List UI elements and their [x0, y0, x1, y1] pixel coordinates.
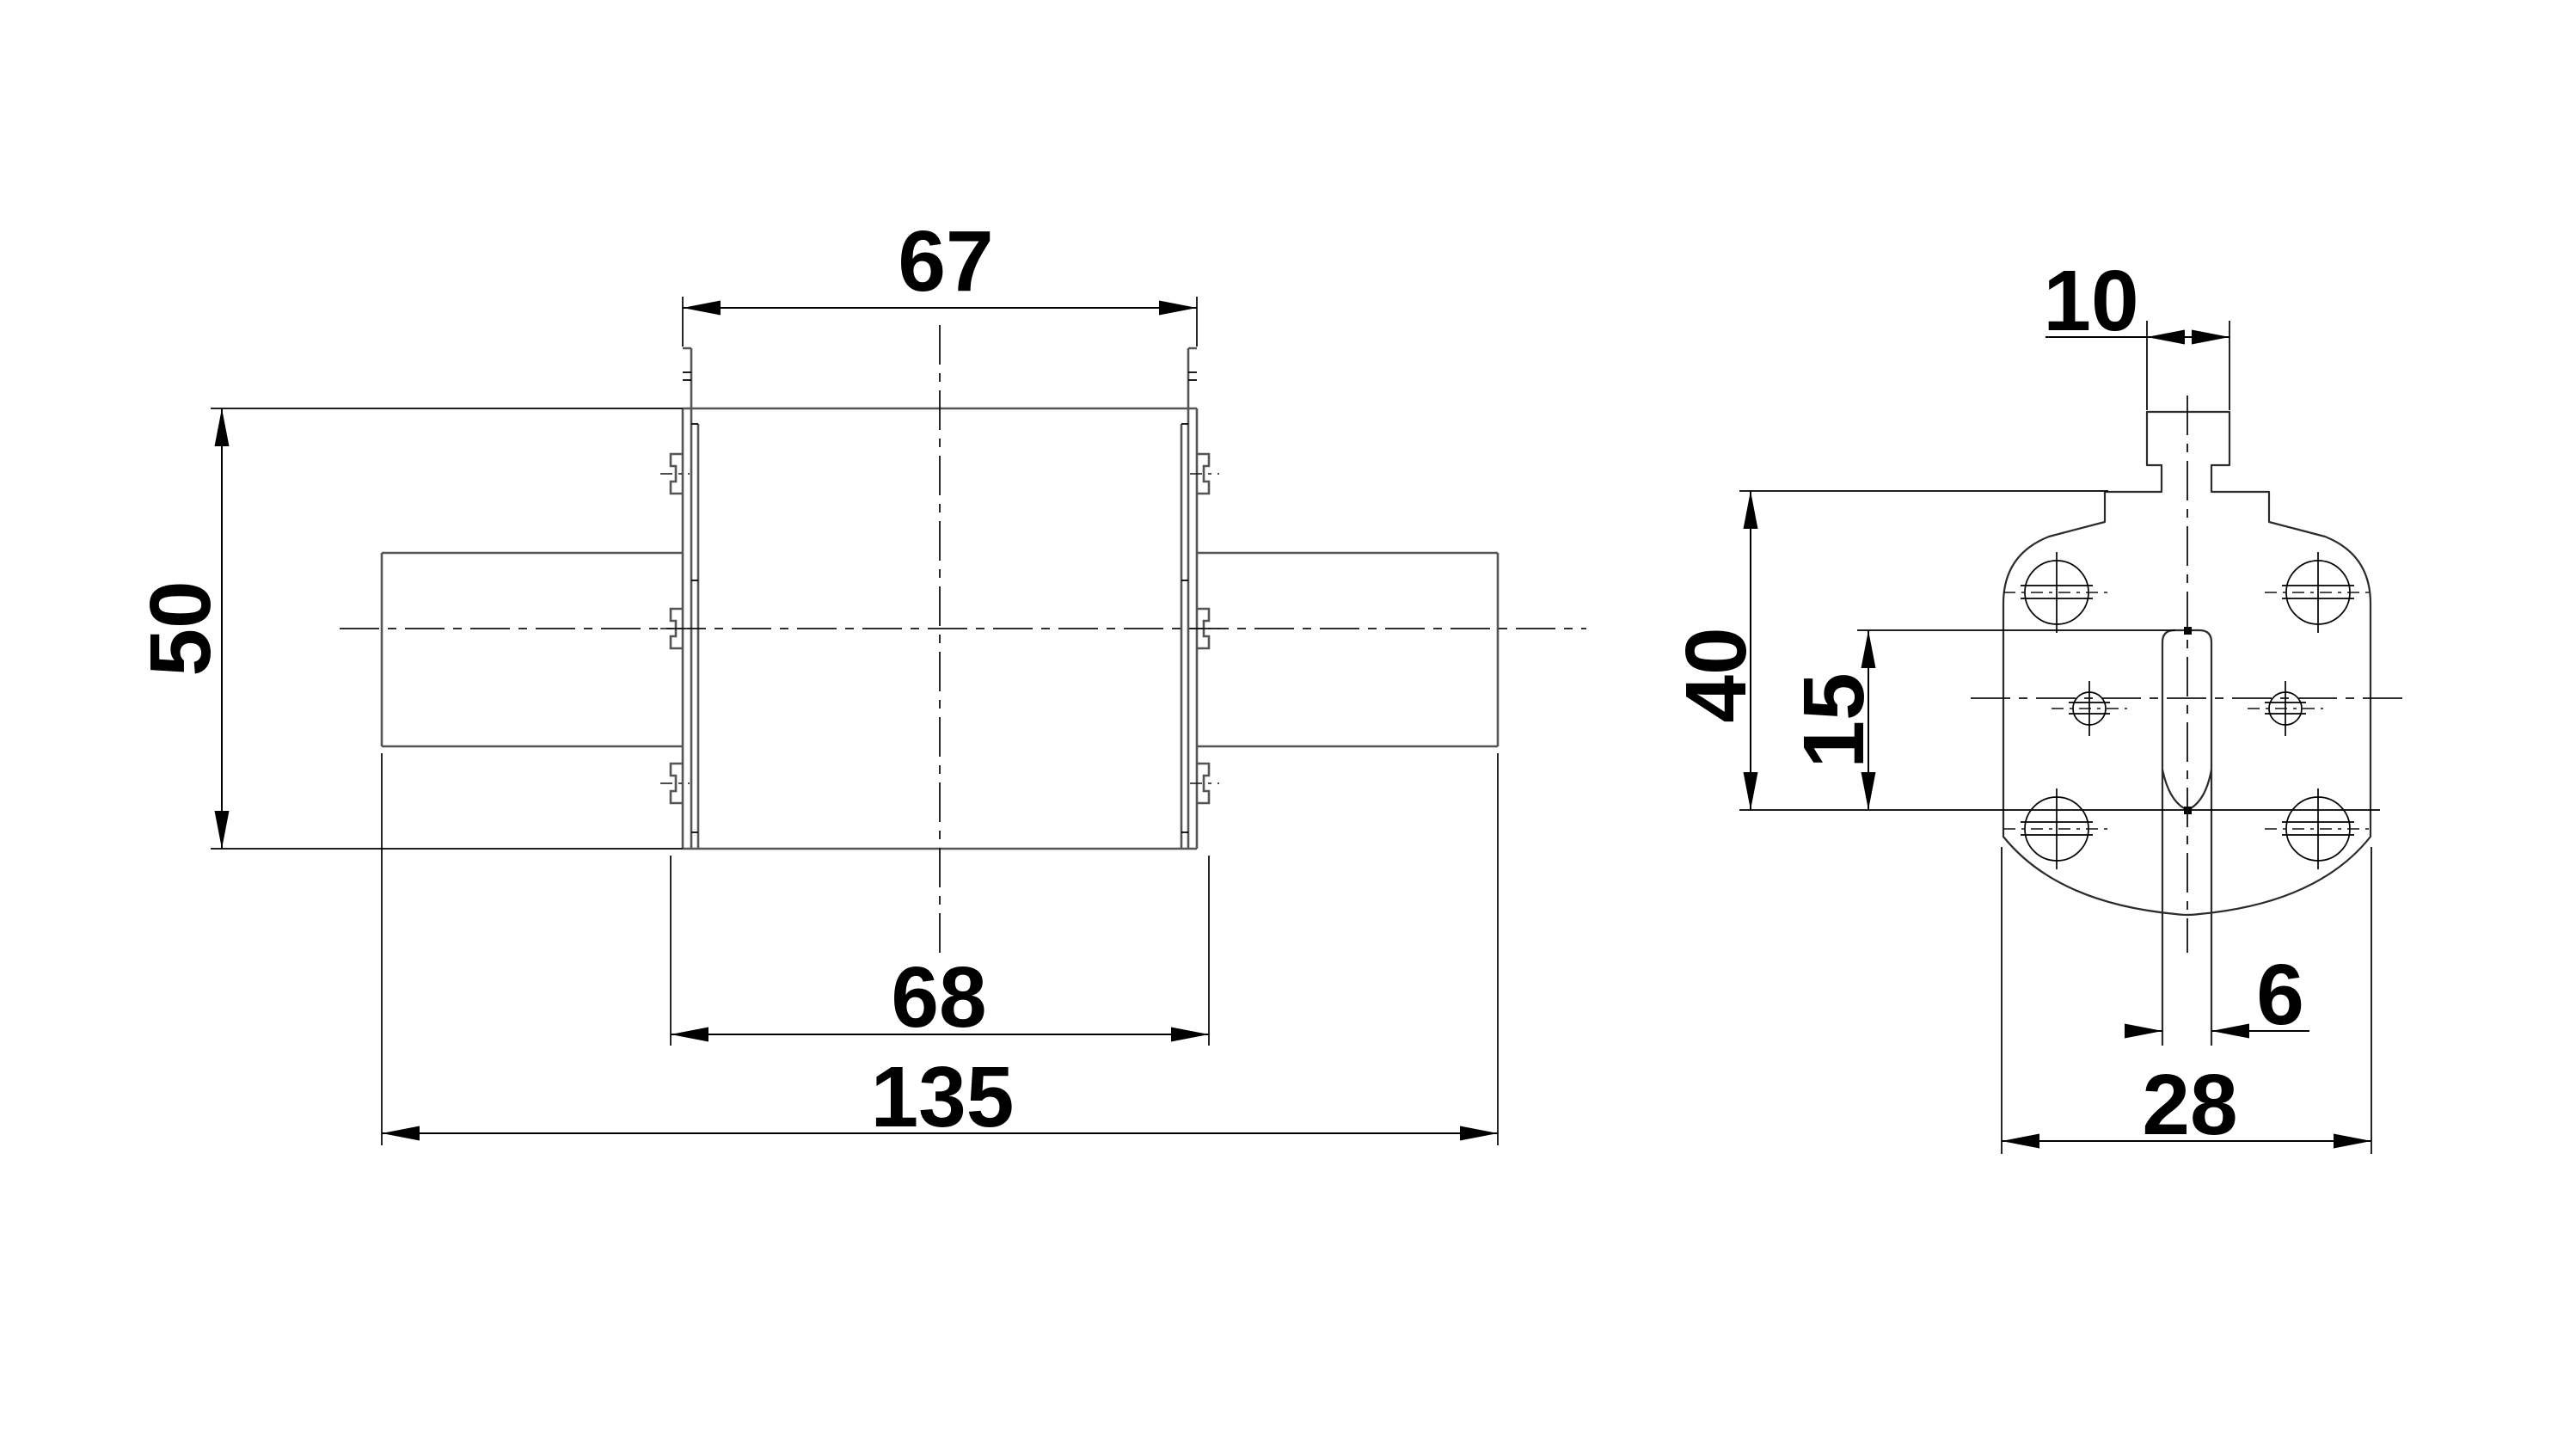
dim-label-overall-length: 135	[871, 1049, 1015, 1145]
dim-label-slot-offset: 15	[1786, 672, 1882, 768]
drawing-canvas: 67 50 68 135	[0, 0, 2576, 1448]
dim-label-top-width: 67	[898, 213, 993, 310]
drawing-sheet: 67 50 68 135	[0, 0, 2576, 1448]
dim-label-blade-thickness: 6	[2256, 947, 2304, 1043]
dim-label-tab-width: 10	[2043, 253, 2138, 349]
dim-label-side-height: 40	[1668, 627, 1764, 722]
sheet-background	[0, 0, 2576, 1448]
dim-label-side-width: 28	[2142, 1057, 2237, 1153]
dim-label-bottom-width: 68	[891, 949, 986, 1046]
dim-label-body-height: 50	[132, 580, 229, 676]
